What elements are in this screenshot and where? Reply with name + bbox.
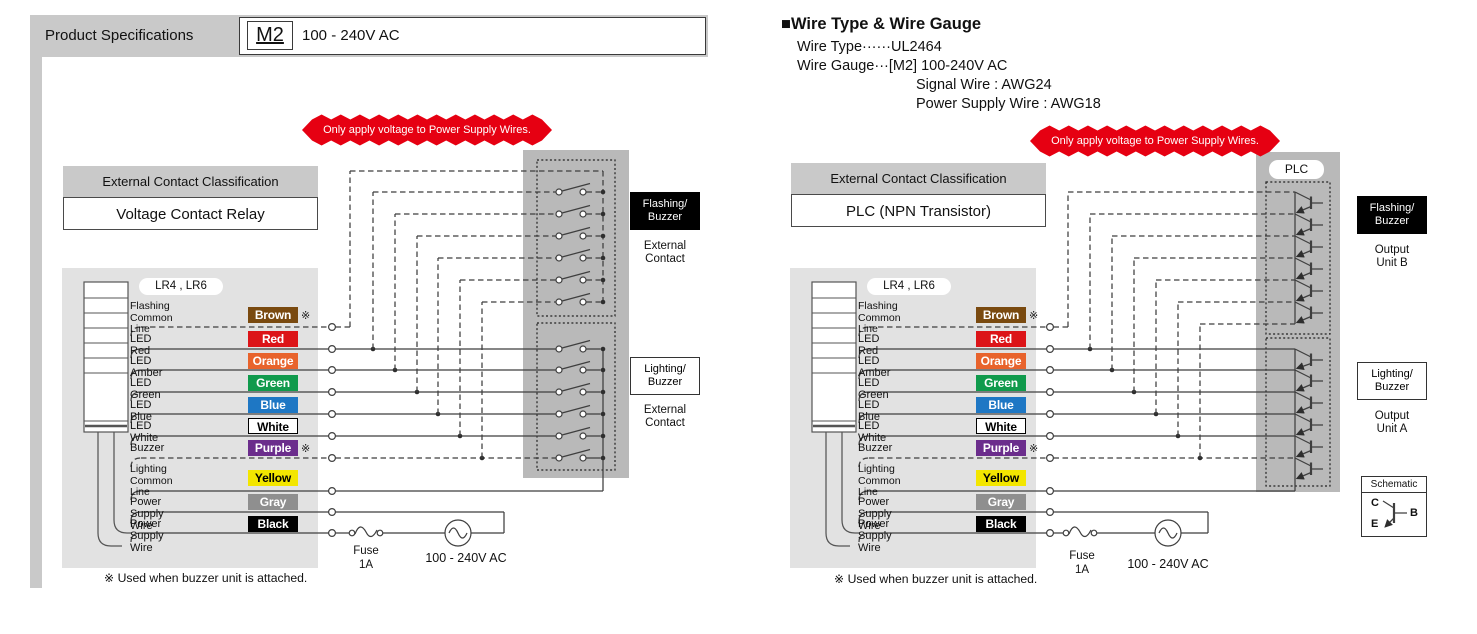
output-unit-b-label: Output Unit B [1353, 244, 1431, 270]
external-contact-label: External Contact [626, 404, 704, 430]
wire-color-chip: Yellow [248, 470, 298, 486]
signal-tower-icon [812, 282, 856, 432]
wire-color-chip: White [248, 418, 298, 434]
page-title: Product Specifications [45, 15, 193, 57]
classification-value: PLC (NPN Transistor) [791, 194, 1046, 227]
wire-row-label: Lighting Common Line [858, 464, 901, 499]
wire-info-heading: ■Wire Type & Wire Gauge [781, 15, 981, 34]
flashing-buzzer-label: Flashing/ Buzzer [1357, 196, 1427, 234]
wire-color-chip: Purple [248, 440, 298, 456]
wire-row-label: LED Amber [858, 355, 890, 379]
fuse-label: Fuse 1A [340, 545, 392, 572]
wire-color-chip: Yellow [976, 470, 1026, 486]
wire-info-line: Wire Type······UL2464 [797, 39, 942, 55]
lighting-buzzer-label: Lighting/ Buzzer [1357, 362, 1427, 400]
classification-value: Voltage Contact Relay [63, 197, 318, 230]
classification-title: External Contact Classification [63, 166, 318, 197]
external-contact-label: External Contact [626, 240, 704, 266]
fuse-rating: 1A [359, 559, 373, 571]
warning-banner: Only apply voltage to Power Supply Wires… [305, 118, 549, 142]
tower-model-pill: LR4 , LR6 [139, 278, 223, 295]
ac-voltage-label: 100 - 240V AC [399, 551, 533, 565]
wire-color-chip: Black [248, 516, 298, 532]
output-unit-a-label: Output Unit A [1353, 410, 1431, 436]
wire-row-label: Flashing Common Line [130, 301, 173, 336]
wire-color-chip: Orange [976, 353, 1026, 369]
plc-pill: PLC [1269, 160, 1324, 179]
warning-banner: Only apply voltage to Power Supply Wires… [1033, 129, 1277, 153]
contact-panel [523, 150, 629, 478]
wire-row-label: LED Green [858, 377, 889, 401]
wire-color-chip: Red [976, 331, 1026, 347]
buzzer-unit-marker: ※ [301, 309, 310, 322]
fuse-text: Fuse [353, 545, 379, 557]
wire-color-chip: Blue [248, 397, 298, 413]
fuse-text: Fuse [1069, 550, 1095, 562]
pin-e-label: E [1371, 518, 1378, 530]
wire-row-label: Buzzer [130, 442, 164, 454]
wire-row-label: Power Supply Wire [130, 518, 164, 554]
wire-row-label: LED Red [130, 333, 151, 357]
tower-model-pill: LR4 , LR6 [867, 278, 951, 295]
wire-color-chip: Black [976, 516, 1026, 532]
wire-row-label: LED Red [858, 333, 879, 357]
wire-row-label: LED White [858, 420, 886, 444]
model-voltage-text: 100 - 240V AC [302, 17, 400, 55]
buzzer-note: ※ Used when buzzer unit is attached. [834, 572, 1037, 586]
pin-b-label: B [1410, 507, 1418, 519]
wire-color-chip: Brown [248, 307, 298, 323]
wire-color-chip: Green [976, 375, 1026, 391]
wire-color-chip: Gray [248, 494, 298, 510]
ac-voltage-label: 100 - 240V AC [1101, 557, 1235, 571]
wire-row-label: LED Amber [130, 355, 162, 379]
wire-row-label: LED Green [130, 377, 161, 401]
wire-color-chip: Brown [976, 307, 1026, 323]
wire-color-chip: Purple [976, 440, 1026, 456]
wire-color-chip: Green [248, 375, 298, 391]
flashing-buzzer-label: Flashing/ Buzzer [630, 192, 700, 230]
wire-color-chip: Blue [976, 397, 1026, 413]
buzzer-unit-marker: ※ [301, 442, 310, 455]
classification-title: External Contact Classification [791, 163, 1046, 194]
wire-info-line: Power Supply Wire : AWG18 [916, 96, 1101, 112]
wire-row-label: Lighting Common Line [130, 464, 173, 499]
wiring-diagram-svg [0, 0, 1477, 634]
wire-color-chip: White [976, 418, 1026, 434]
wire-color-chip: Gray [976, 494, 1026, 510]
header-left-strip [30, 57, 42, 588]
buzzer-unit-marker: ※ [1029, 309, 1038, 322]
wire-row-label: Buzzer [858, 442, 892, 454]
signal-tower-icon [84, 282, 128, 432]
wire-info-line: Wire Gauge···[M2] 100-240V AC [797, 58, 1007, 74]
model-code-badge: M2 [247, 21, 293, 50]
wire-row-label: LED White [130, 420, 158, 444]
page: Product Specifications M2 100 - 240V AC … [0, 0, 1477, 634]
fuse-rating: 1A [1075, 564, 1089, 576]
pin-c-label: C [1371, 497, 1379, 509]
buzzer-unit-marker: ※ [1029, 442, 1038, 455]
wire-color-chip: Orange [248, 353, 298, 369]
lighting-buzzer-label: Lighting/ Buzzer [630, 357, 700, 395]
buzzer-note: ※ Used when buzzer unit is attached. [104, 571, 307, 585]
wire-info-line: Signal Wire : AWG24 [916, 77, 1052, 93]
wire-color-chip: Red [248, 331, 298, 347]
schematic-title: Schematic [1361, 476, 1427, 493]
wire-row-label: Flashing Common Line [858, 301, 901, 336]
wire-row-label: Power Supply Wire [858, 518, 892, 554]
